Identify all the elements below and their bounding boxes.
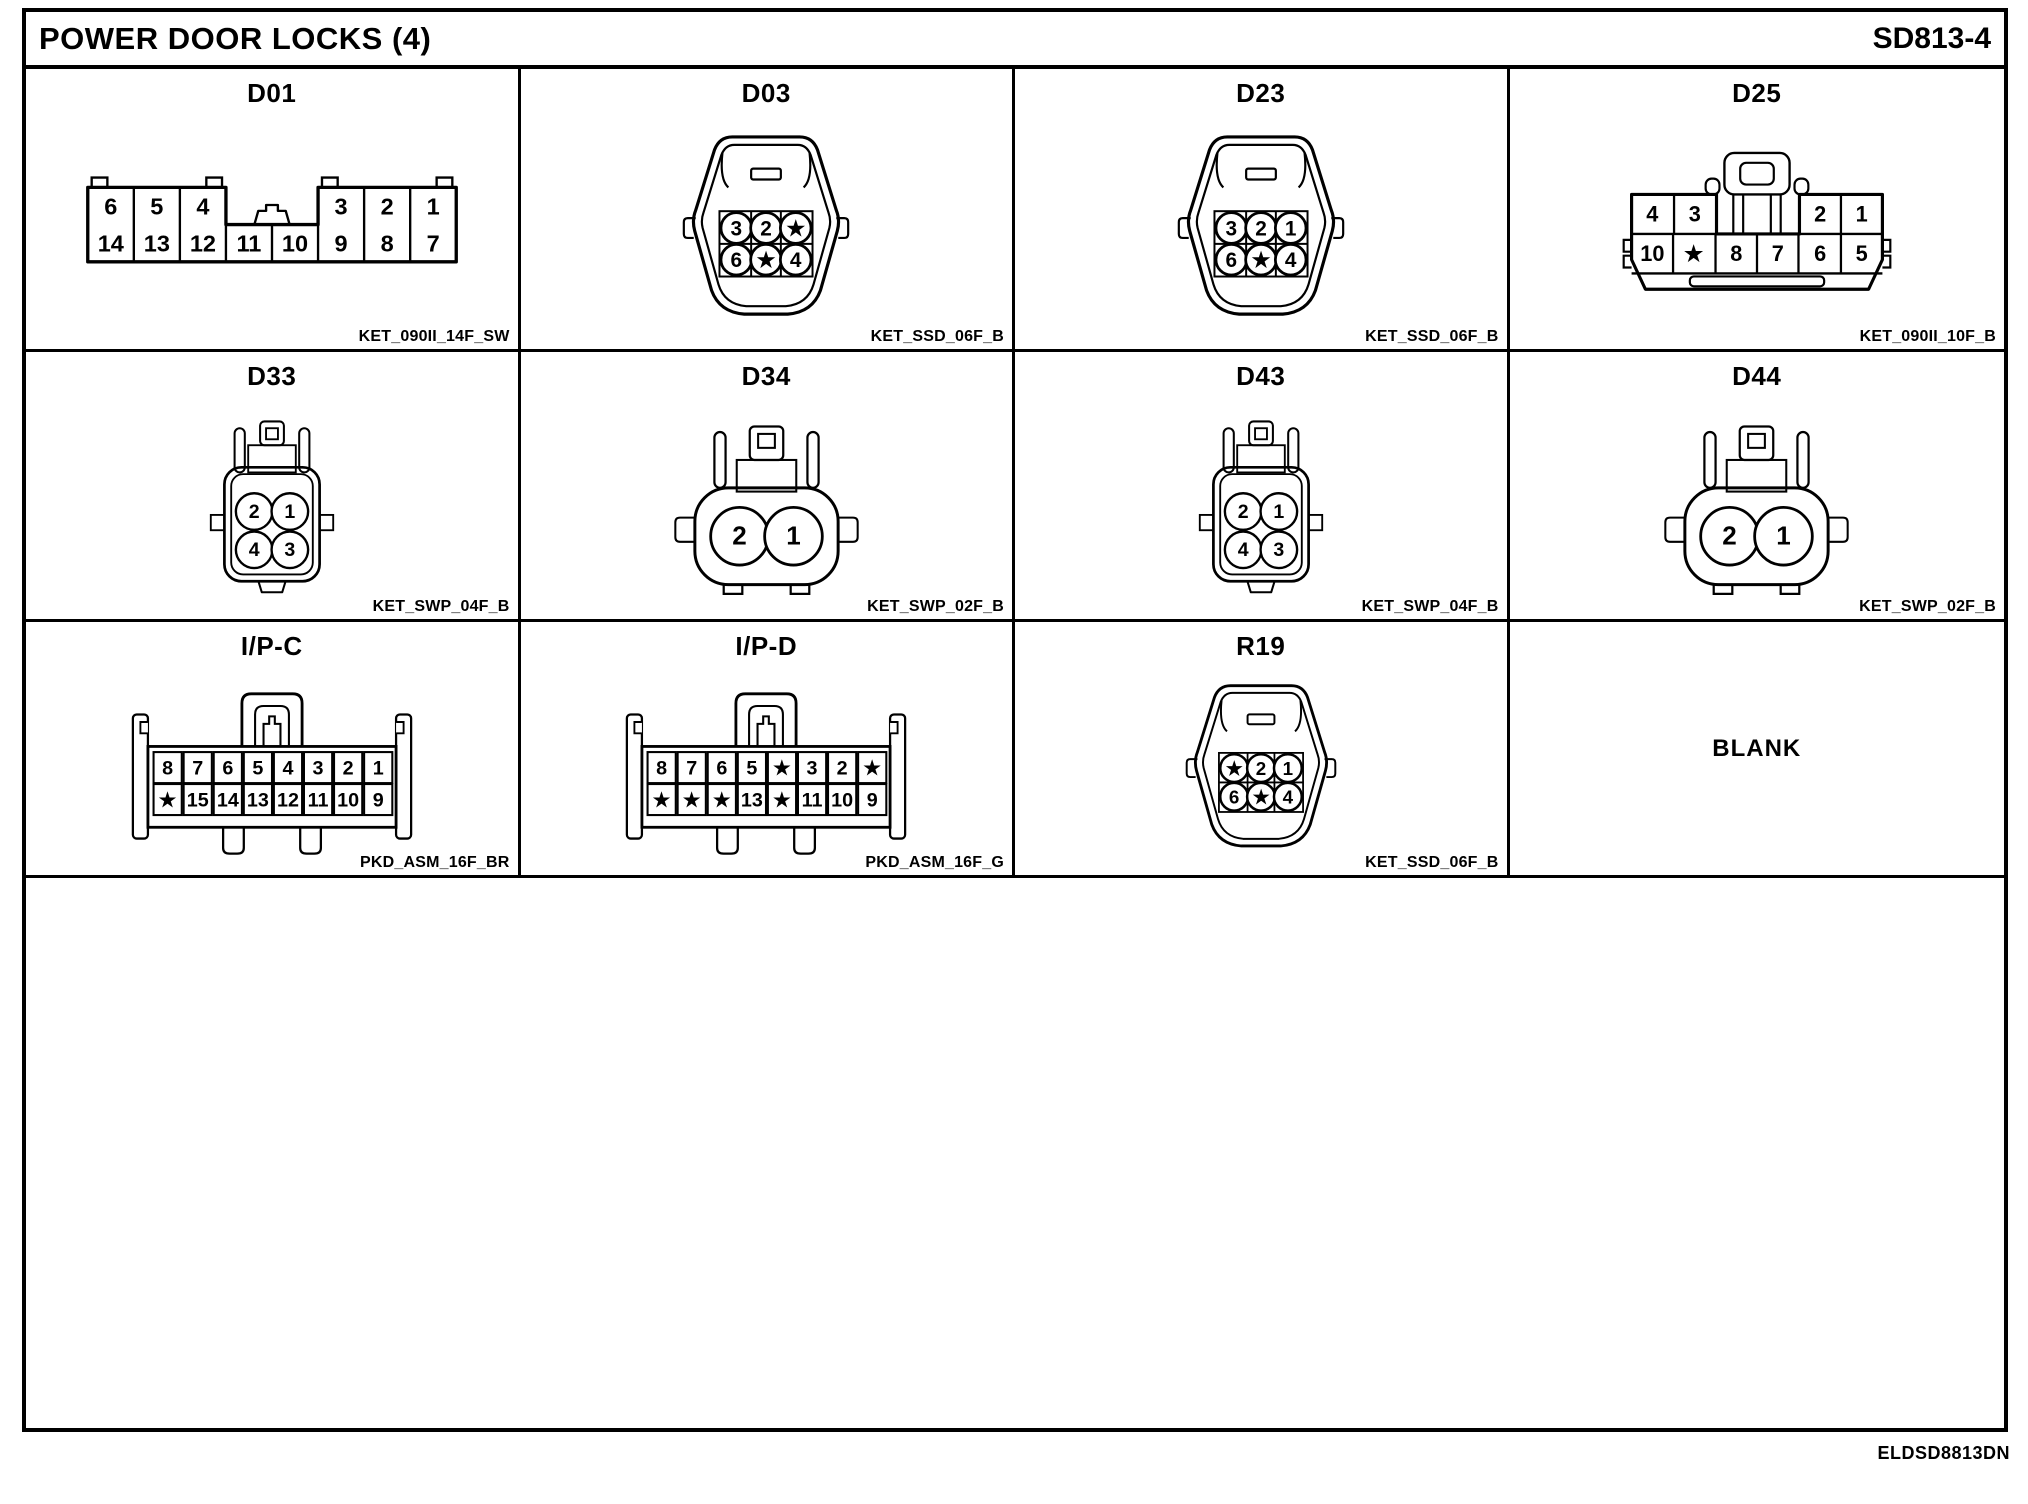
pin-label: 5 [252, 757, 263, 779]
cell-ipd: I/P-D 8 7 6 5 ★ 3 2 ★ ★ ★ ★ 13 ★ [521, 622, 1016, 878]
connector-title-ipc: I/P-C [241, 631, 303, 662]
pin-label: 4 [1285, 249, 1297, 272]
pin-label: 1 [1776, 520, 1790, 550]
pin-label: 2 [380, 193, 393, 219]
part-number-ipd: PKD_ASM_16F_G [865, 854, 1004, 872]
connector-title-d01: D01 [247, 78, 296, 109]
pin-label: 3 [334, 193, 347, 219]
connector-title-r19: R19 [1236, 631, 1285, 662]
part-number-ipc: PKD_ASM_16F_BR [360, 854, 510, 872]
pin-label: 3 [1273, 539, 1284, 561]
pin-label: 10 [1640, 241, 1664, 266]
pin-label: 5 [747, 757, 758, 779]
connector-d43-diagram: 2 1 4 3 [1176, 406, 1346, 606]
pin-label: 3 [807, 757, 818, 779]
pin-label: 13 [741, 789, 763, 811]
pin-label: ★ [757, 249, 776, 272]
pin-label: 5 [1855, 241, 1867, 266]
pin-label: 3 [731, 217, 743, 240]
pin-label: ★ [713, 789, 731, 811]
part-number-d23: KET_SSD_06F_B [1365, 328, 1498, 346]
page-title: POWER DOOR LOCKS (4) [39, 21, 431, 57]
connector-grid: D01 6 5 4 3 2 1 14 13 12 11 10 9 8 [26, 69, 2004, 878]
sheet-header: POWER DOOR LOCKS (4) SD813-4 [26, 12, 2004, 69]
cell-d34: D34 2 1 KET_SWP_02F_B [521, 352, 1016, 622]
pin-label: 9 [372, 789, 383, 811]
blank-label: BLANK [1712, 735, 1801, 763]
pin-label: 4 [1646, 202, 1658, 227]
pin-label: ★ [653, 789, 671, 811]
pin-label: 9 [334, 230, 347, 256]
pin-label: 6 [731, 249, 743, 272]
cell-r19: R19 ★ 2 1 6 ★ 4 KET_SSD_06F_B [1015, 622, 1510, 878]
pin-label: 2 [760, 217, 772, 240]
part-number-d33: KET_SWP_04F_B [373, 598, 510, 616]
pin-label: 1 [1273, 500, 1284, 522]
connector-d23-diagram: 3 2 1 6 ★ 4 [1162, 125, 1360, 333]
connector-art-d44: 2 1 [1510, 392, 2005, 619]
pin-label: 11 [802, 789, 823, 811]
pin-label: 6 [717, 757, 728, 779]
cell-blank: BLANK [1510, 622, 2005, 878]
part-number-d01: KET_090II_14F_SW [359, 328, 510, 346]
pin-label: 4 [1237, 539, 1248, 561]
pin-label: 12 [190, 230, 216, 256]
pin-label: ★ [773, 789, 791, 811]
pin-label: 1 [1285, 217, 1297, 240]
connector-art-d01: 6 5 4 3 2 1 14 13 12 11 10 9 8 7 [26, 109, 518, 349]
pin-label: 8 [162, 757, 173, 779]
pin-label: 2 [837, 757, 848, 779]
pin-label: 2 [1256, 757, 1266, 778]
pin-label: 2 [1237, 500, 1248, 522]
pin-label: ★ [864, 757, 882, 779]
connector-art-d23: 3 2 1 6 ★ 4 [1015, 109, 1507, 349]
pin-label: 9 [867, 789, 878, 811]
pin-label: 8 [1730, 241, 1742, 266]
connector-title-d03: D03 [742, 78, 791, 109]
pin-label: 6 [222, 757, 233, 779]
pin-label: 4 [196, 193, 209, 219]
connector-title-d33: D33 [247, 361, 296, 392]
pin-label: 4 [282, 757, 293, 779]
pin-label: 14 [97, 230, 123, 256]
connector-art-d03: 3 2 ★ 6 ★ 4 [521, 109, 1013, 349]
pin-label: ★ [159, 789, 177, 811]
part-number-d25: KET_090II_10F_B [1860, 328, 1996, 346]
pin-label: 4 [248, 539, 259, 561]
connector-art-ipd: 8 7 6 5 ★ 3 2 ★ ★ ★ ★ 13 ★ 11 10 9 [521, 662, 1013, 875]
manual-page: { "page": { "title": "POWER DOOR LOCKS (… [0, 0, 2028, 1504]
pin-label: 2 [732, 520, 746, 550]
connector-art-ipc: 8 7 6 5 4 3 2 1 ★ 15 14 13 12 11 10 9 [26, 662, 518, 875]
pin-label: 6 [104, 193, 117, 219]
cell-d01: D01 6 5 4 3 2 1 14 13 12 11 10 9 8 [26, 69, 521, 352]
pin-label: 8 [380, 230, 393, 256]
part-number-d34: KET_SWP_02F_B [867, 598, 1004, 616]
pin-label: 2 [342, 757, 353, 779]
pin-label: 10 [831, 789, 853, 811]
connector-art-r19: ★ 2 1 6 ★ 4 [1015, 662, 1507, 875]
connector-title-d44: D44 [1732, 361, 1781, 392]
pin-label: 14 [217, 789, 239, 811]
pin-label: ★ [787, 217, 806, 240]
connector-art-d43: 2 1 4 3 [1015, 392, 1507, 619]
connector-art-d25: 4 3 2 1 10 ★ 8 7 6 5 [1510, 109, 2005, 349]
pin-label: 5 [150, 193, 163, 219]
pin-label: ★ [683, 789, 701, 811]
pin-label: 1 [284, 500, 295, 522]
connector-d34-diagram: 2 1 [664, 406, 869, 606]
pin-label: ★ [773, 757, 791, 779]
connector-title-ipd: I/P-D [735, 631, 797, 662]
cell-d25: D25 4 3 2 1 10 ★ 8 7 6 5 KET_090II_10F_B [1510, 69, 2005, 352]
pin-label: 4 [790, 249, 802, 272]
pin-label: 3 [284, 539, 295, 561]
pin-label: 1 [786, 520, 800, 550]
pin-label: 2 [1255, 217, 1267, 240]
connector-d25-diagram: 4 3 2 1 10 ★ 8 7 6 5 [1599, 145, 1915, 313]
cell-d33: D33 2 1 4 3 KET_SWP_04F_B [26, 352, 521, 622]
connector-ipc-diagram: 8 7 6 5 4 3 2 1 ★ 15 14 13 12 11 10 9 [112, 675, 432, 863]
connector-title-d34: D34 [742, 361, 791, 392]
pin-label: 1 [372, 757, 383, 779]
pin-label: 11 [236, 230, 261, 256]
pin-label: 6 [1225, 249, 1237, 272]
pin-label: 1 [426, 193, 439, 219]
cell-d44: D44 2 1 KET_SWP_02F_B [1510, 352, 2005, 622]
connector-art-d34: 2 1 [521, 392, 1013, 619]
connector-art-d33: 2 1 4 3 [26, 392, 518, 619]
connector-ipd-diagram: 8 7 6 5 ★ 3 2 ★ ★ ★ ★ 13 ★ 11 10 9 [606, 675, 926, 863]
pin-label: 15 [187, 789, 209, 811]
connector-title-d25: D25 [1732, 78, 1781, 109]
pin-label: ★ [1684, 241, 1704, 266]
part-number-r19: KET_SSD_06F_B [1365, 854, 1498, 872]
pin-label: 7 [686, 757, 697, 779]
pin-label: 7 [1771, 241, 1783, 266]
pin-label: 2 [1723, 520, 1737, 550]
pin-label: 3 [1225, 217, 1237, 240]
pin-label: 10 [337, 789, 359, 811]
page-code: SD813-4 [1873, 22, 1991, 56]
pin-label: 13 [247, 789, 269, 811]
cell-d23: D23 3 2 1 6 ★ 4 KET_SSD_06F_B [1015, 69, 1510, 352]
pin-label: 2 [248, 500, 259, 522]
pin-label: ★ [1251, 249, 1270, 272]
connector-title-d23: D23 [1236, 78, 1285, 109]
connector-d33-diagram: 2 1 4 3 [187, 406, 357, 606]
connector-d01-diagram: 6 5 4 3 2 1 14 13 12 11 10 9 8 7 [56, 156, 488, 303]
cell-d43: D43 2 1 4 3 KET_SWP_04F_B [1015, 352, 1510, 622]
pin-label: 1 [1855, 202, 1867, 227]
connector-title-d43: D43 [1236, 361, 1285, 392]
diagram-sheet: POWER DOOR LOCKS (4) SD813-4 D01 6 5 4 3… [22, 8, 2008, 1432]
pin-label: 3 [312, 757, 323, 779]
pin-label: 7 [426, 230, 439, 256]
part-number-d44: KET_SWP_02F_B [1859, 598, 1996, 616]
pin-label: 6 [1814, 241, 1826, 266]
cell-ipc: I/P-C 8 7 6 5 4 3 2 1 ★ 15 14 13 12 [26, 622, 521, 878]
document-id: ELDSD8813DN [1877, 1443, 2010, 1464]
pin-label: 7 [192, 757, 203, 779]
pin-label: 3 [1688, 202, 1700, 227]
pin-label: 8 [656, 757, 667, 779]
cell-d03: D03 3 2 ★ 6 ★ 4 KET_SSD_06F_B [521, 69, 1016, 352]
connector-d44-diagram: 2 1 [1654, 406, 1859, 606]
pin-label: 1 [1282, 757, 1292, 778]
pin-label: ★ [1252, 786, 1269, 807]
pin-label: 10 [282, 230, 308, 256]
pin-label: 4 [1282, 786, 1293, 807]
part-number-d43: KET_SWP_04F_B [1362, 598, 1499, 616]
part-number-d03: KET_SSD_06F_B [871, 328, 1004, 346]
pin-label: 13 [144, 230, 170, 256]
connector-d03-diagram: 3 2 ★ 6 ★ 4 [667, 125, 865, 333]
pin-label: 2 [1814, 202, 1826, 227]
pin-label: 11 [307, 789, 328, 811]
connector-r19-diagram: ★ 2 1 6 ★ 4 [1171, 675, 1351, 863]
pin-label: ★ [1225, 757, 1242, 778]
pin-label: 6 [1229, 786, 1239, 807]
pin-label: 12 [277, 789, 299, 811]
